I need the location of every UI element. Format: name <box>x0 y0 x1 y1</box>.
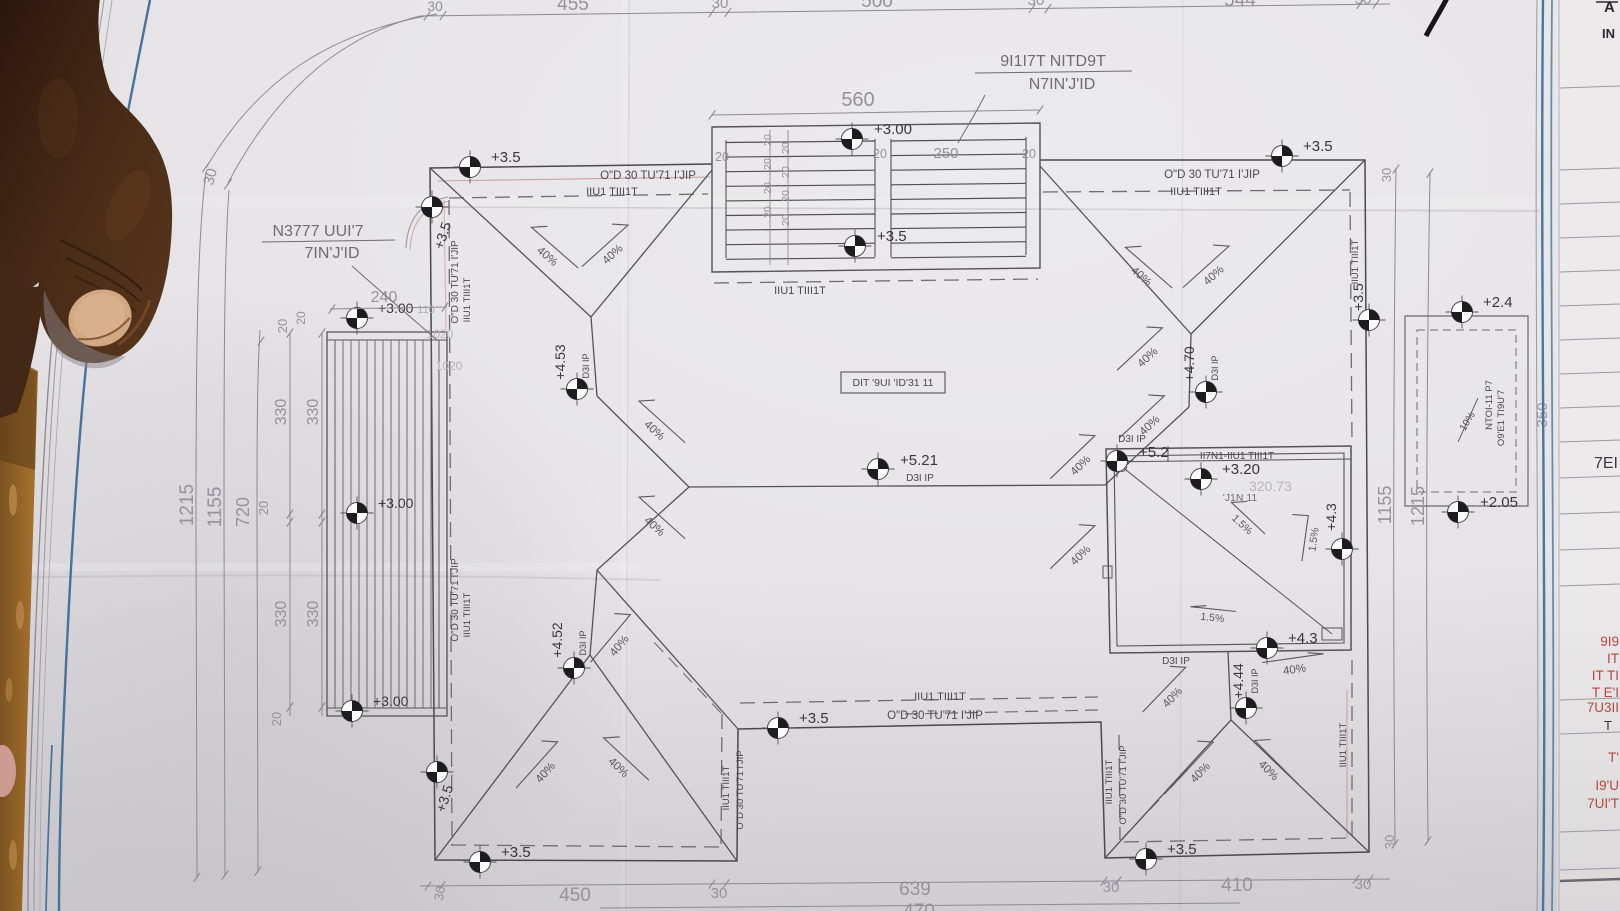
svg-text:+4.53: +4.53 <box>552 344 568 380</box>
svg-text:560: 560 <box>841 89 874 111</box>
svg-text:+3.5: +3.5 <box>1303 138 1333 155</box>
svg-text:20: 20 <box>762 134 774 146</box>
svg-text:330: 330 <box>273 399 290 426</box>
svg-text:IIU1 TIII1T: IIU1 TIII1T <box>1338 722 1349 767</box>
svg-text:9I1I7T NITD9T: 9I1I7T NITD9T <box>1000 53 1106 70</box>
svg-text:+3.5: +3.5 <box>799 710 829 727</box>
svg-text:IT: IT <box>1607 651 1619 666</box>
svg-text:250: 250 <box>933 145 958 162</box>
svg-text:20: 20 <box>256 501 271 515</box>
svg-text:20: 20 <box>269 712 284 726</box>
svg-text:110: 110 <box>417 304 435 316</box>
svg-text:7UI'T: 7UI'T <box>1587 796 1619 811</box>
svg-text:30: 30 <box>1355 876 1372 893</box>
svg-text:1155: 1155 <box>1375 486 1395 525</box>
svg-text:IIU1 TIII1T: IIU1 TIII1T <box>774 285 826 297</box>
svg-text:+3.5: +3.5 <box>1350 283 1366 311</box>
svg-text:+3.00: +3.00 <box>378 495 414 511</box>
svg-text:410: 410 <box>1221 875 1253 896</box>
svg-text:D3I IP: D3I IP <box>1162 656 1190 667</box>
svg-text:D3I IP: D3I IP <box>581 353 591 378</box>
svg-text:+4.3: +4.3 <box>1323 503 1339 531</box>
svg-text:O"D 30 TU'71 I'JIP: O"D 30 TU'71 I'JIP <box>1164 169 1260 181</box>
svg-text:30: 30 <box>1028 0 1045 9</box>
svg-text:+2.05: +2.05 <box>1480 494 1518 511</box>
svg-text:500: 500 <box>861 0 893 12</box>
svg-text:20: 20 <box>294 311 308 325</box>
svg-text:D3I IP: D3I IP <box>906 473 934 484</box>
svg-text:+4.70: +4.70 <box>1181 346 1197 382</box>
svg-text:+3.5: +3.5 <box>877 228 907 245</box>
svg-text:O"D 30 TU'71 I'JIP: O"D 30 TU'71 I'JIP <box>1118 745 1129 824</box>
svg-text:240: 240 <box>371 289 398 306</box>
svg-text:+3.20: +3.20 <box>1222 461 1260 478</box>
svg-text:DIT '9UI 'ID'31 11: DIT '9UI 'ID'31 11 <box>853 377 934 389</box>
svg-text:20: 20 <box>780 214 792 226</box>
svg-text:+2.4: +2.4 <box>1483 294 1513 311</box>
svg-text:7IN'J'ID: 7IN'J'ID <box>304 245 359 262</box>
svg-text:O"D 30 TU'71 I'JIP: O"D 30 TU'71 I'JIP <box>735 750 746 829</box>
svg-text:O"D 30 TU'71 I'JIP: O"D 30 TU'71 I'JIP <box>887 710 983 722</box>
svg-text:O"D 30 TU'71 I'JIP: O"D 30 TU'71 I'JIP <box>450 558 461 642</box>
svg-text:639: 639 <box>899 879 931 900</box>
svg-text:20: 20 <box>873 147 887 161</box>
svg-text:20: 20 <box>762 158 774 170</box>
svg-text:O"D 30 TU'71 I'JIP: O"D 30 TU'71 I'JIP <box>450 240 461 324</box>
svg-text:30: 30 <box>712 0 729 12</box>
svg-text:1215: 1215 <box>177 484 198 526</box>
svg-text:IIU1 TIII1T: IIU1 TIII1T <box>1104 759 1115 804</box>
svg-text:+3.00: +3.00 <box>373 693 409 709</box>
svg-text:O9'E1 TI9U'7: O9'E1 TI9U'7 <box>1496 390 1507 446</box>
svg-text:470: 470 <box>903 901 935 911</box>
svg-text:330: 330 <box>273 601 290 628</box>
svg-text:+3.5: +3.5 <box>491 149 521 166</box>
svg-text:20: 20 <box>275 319 290 333</box>
svg-text:NTOI-11 P7: NTOI-11 P7 <box>1484 380 1495 430</box>
svg-text:450: 450 <box>559 885 591 906</box>
svg-text:D3I IP: D3I IP <box>1250 668 1260 693</box>
svg-text:O"D 30 TU'71 I'JIP: O"D 30 TU'71 I'JIP <box>600 170 696 182</box>
svg-text:D3I IP: D3I IP <box>578 630 588 655</box>
svg-text:20: 20 <box>762 206 774 218</box>
svg-text:30: 30 <box>1355 0 1372 8</box>
svg-text:30: 30 <box>711 885 728 902</box>
svg-text:I9'U: I9'U <box>1595 778 1619 793</box>
svg-text:IT TI: IT TI <box>1592 668 1619 683</box>
svg-text:IIU1 TIII1T: IIU1 TIII1T <box>914 691 966 703</box>
svg-text:1155: 1155 <box>205 487 226 528</box>
svg-text:IIU1 TIII1T: IIU1 TIII1T <box>1350 239 1361 284</box>
svg-text:IIU1 TIII1T: IIU1 TIII1T <box>462 277 473 322</box>
svg-text:T': T' <box>1608 750 1619 765</box>
svg-text:720: 720 <box>233 497 253 527</box>
svg-text:20: 20 <box>715 150 729 164</box>
svg-text:20: 20 <box>780 190 792 202</box>
svg-text:T E'I: T E'I <box>1592 685 1619 700</box>
svg-text:455: 455 <box>557 0 589 15</box>
svg-text:+3.5: +3.5 <box>501 844 531 861</box>
svg-text:20: 20 <box>762 182 774 194</box>
svg-text:20: 20 <box>780 142 792 154</box>
svg-text:30: 30 <box>1382 835 1397 849</box>
svg-text:IIU1 TIII1T: IIU1 TIII1T <box>1170 186 1222 198</box>
svg-text:330: 330 <box>305 601 322 628</box>
svg-text:7EI: 7EI <box>1594 455 1618 472</box>
svg-text:IN: IN <box>1602 26 1615 41</box>
svg-text:20: 20 <box>1022 147 1036 161</box>
svg-text:D3I IP: D3I IP <box>1210 355 1220 380</box>
svg-text:+5.21: +5.21 <box>900 452 938 469</box>
svg-text:330: 330 <box>305 399 322 426</box>
svg-text:+5.2: +5.2 <box>1139 444 1169 461</box>
svg-text:7U3II: 7U3II <box>1587 700 1619 715</box>
svg-text:IIU1 TIII1T: IIU1 TIII1T <box>462 592 473 637</box>
svg-text:30: 30 <box>1103 879 1120 896</box>
svg-text:30: 30 <box>431 885 448 902</box>
svg-text:30: 30 <box>427 0 443 14</box>
svg-text:1.5%: 1.5% <box>1200 611 1225 625</box>
svg-text:N7IN'J'ID: N7IN'J'ID <box>1029 76 1096 93</box>
svg-text:20: 20 <box>780 166 792 178</box>
svg-text:9I9: 9I9 <box>1600 634 1619 649</box>
svg-text:+4.52: +4.52 <box>549 622 565 658</box>
svg-text:+3.5: +3.5 <box>1167 841 1197 858</box>
svg-text:544: 544 <box>1224 0 1256 11</box>
svg-text:1020: 1020 <box>436 359 463 373</box>
svg-text:+3.00: +3.00 <box>874 121 912 138</box>
svg-text:IIU1 TIII1T: IIU1 TIII1T <box>586 186 638 198</box>
svg-text:T: T <box>1604 718 1612 733</box>
svg-text:+4.3: +4.3 <box>1288 630 1318 647</box>
svg-text:30: 30 <box>1379 168 1394 182</box>
svg-text:N3777 UUI'7: N3777 UUI'7 <box>272 223 363 240</box>
svg-text:+4.44: +4.44 <box>1230 663 1246 699</box>
svg-text:IIU1 TIII1T: IIU1 TIII1T <box>721 765 732 810</box>
